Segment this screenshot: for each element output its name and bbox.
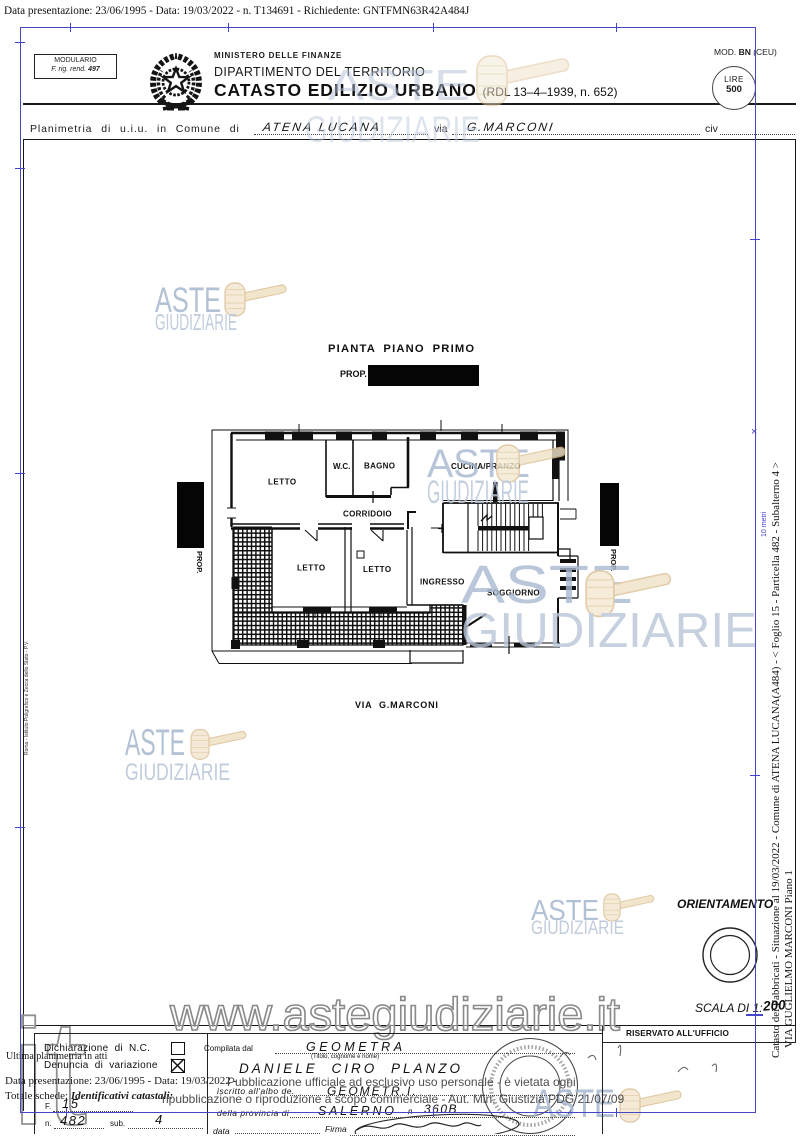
- svg-text:GIUDIZIARIE: GIUDIZIARIE: [427, 474, 529, 510]
- svg-text:GIUDIZIARIE: GIUDIZIARIE: [531, 918, 624, 939]
- svg-text:GIUDIZIARIE: GIUDIZIARIE: [461, 604, 757, 658]
- svg-text:GIUDIZIARIE: GIUDIZIARIE: [155, 309, 237, 335]
- svg-text:GIUDIZIARIE: GIUDIZIARIE: [305, 109, 480, 150]
- svg-text:ASTE: ASTE: [328, 61, 470, 110]
- svg-text:GIUDIZIARIE: GIUDIZIARIE: [125, 759, 230, 786]
- svg-text:ASTE: ASTE: [125, 722, 185, 763]
